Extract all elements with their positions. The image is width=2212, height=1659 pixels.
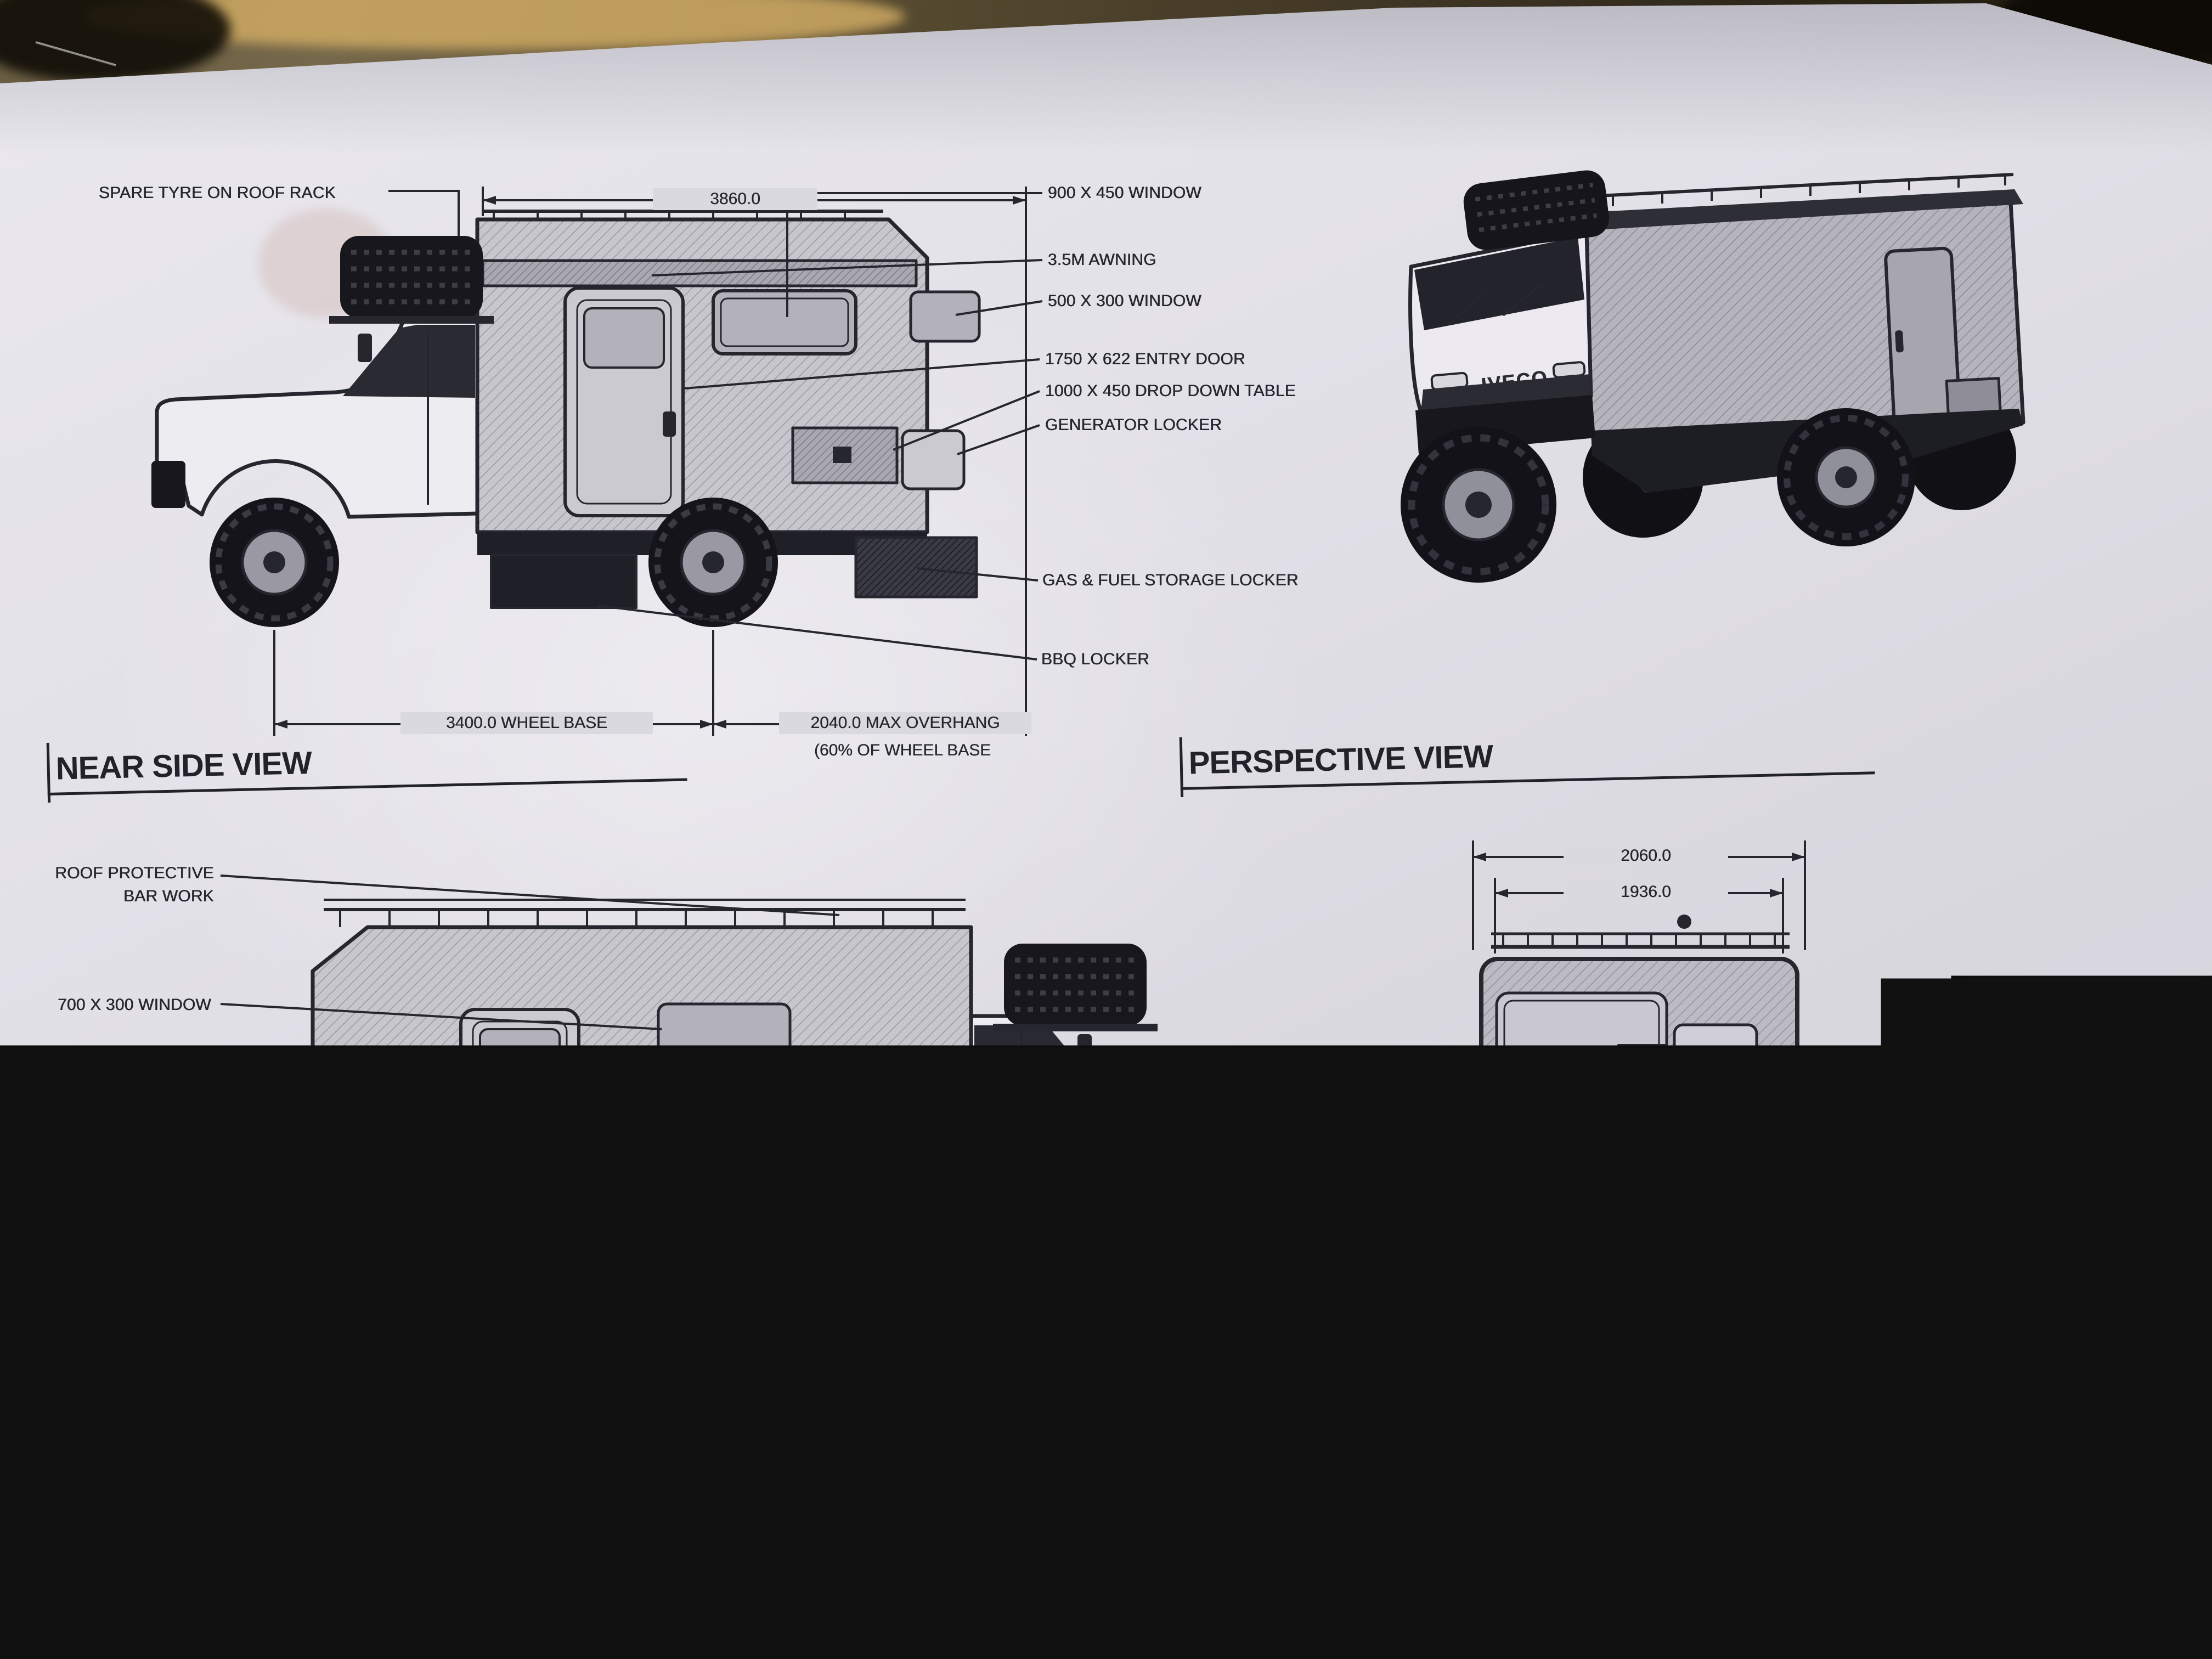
drawing-sheet: IVECO bbox=[0, 0, 2212, 1659]
perspective-view-drawing bbox=[1229, 126, 2194, 763]
issue-row-details: CONCEPT D bbox=[1242, 1628, 1326, 1645]
label-window-500: 500 X 300 WINDOW bbox=[1048, 290, 1201, 312]
issue-row-details: CONCEPT C bbox=[1242, 1646, 1325, 1659]
divider-4 bbox=[1722, 1582, 1725, 1659]
company-name-2: WARRIORS bbox=[207, 1616, 379, 1655]
label-window-700-upper: 700 X 300 WINDOW bbox=[22, 994, 211, 1015]
handwriting-tyres-heading: TYRES :- bbox=[1479, 1411, 1648, 1477]
projection-cone-icon bbox=[1835, 1595, 1918, 1659]
front-wheel bbox=[210, 498, 339, 627]
general-notes-heading: GENERAL NOT bbox=[2132, 1341, 2212, 1360]
issue-row-id: D bbox=[1182, 1627, 1192, 1644]
handwriting-psi-sand: 30 bbox=[1942, 1513, 1990, 1551]
company-name-1: ALL TERRAIN bbox=[189, 1581, 394, 1620]
units-divider bbox=[1525, 1620, 1722, 1623]
general-notes-line6: TAKE PRECED bbox=[2132, 1559, 2212, 1578]
rear-wheel bbox=[648, 498, 778, 627]
label-rear-storage: STORAGE LOCKER bbox=[1850, 1135, 2004, 1156]
sheet-row-divider-1 bbox=[1920, 1617, 2211, 1622]
project-code: PD.01 bbox=[533, 1594, 585, 1616]
drawing-number: VE-FM-501-9002 bbox=[529, 1620, 723, 1651]
dim-overall-length: 3860.0 bbox=[653, 188, 817, 210]
table-dark-corner-left bbox=[0, 0, 230, 82]
dim-overhang-2: (60% OF WHEEL BASE bbox=[779, 740, 1026, 761]
issue-row-req: JCB bbox=[1451, 1611, 1477, 1628]
sheet-size-value: A3 bbox=[2070, 1596, 2090, 1613]
label-generator: GENERATOR LOCKER bbox=[1045, 414, 1222, 436]
issue-row-details: CONCEPT E bbox=[1242, 1609, 1325, 1627]
issue-col-header: ISSUE ID: bbox=[1173, 1589, 1239, 1607]
general-notes-line2: BEFORE CON bbox=[2132, 1441, 2212, 1459]
issue-row-id: C bbox=[1181, 1646, 1192, 1659]
general-notes-emphasis: IF IN DOU bbox=[2132, 1365, 2212, 1401]
sheet-row-divider-2 bbox=[1920, 1651, 2211, 1656]
dim-overhang-1: 2040.0 MAX OVERHANG bbox=[779, 712, 1031, 734]
divider-1 bbox=[515, 1570, 518, 1659]
issue-row-req: JCB bbox=[1450, 1648, 1477, 1659]
sheet-number-label: SHEET NUMBE bbox=[2128, 1596, 2212, 1615]
label-gas-fuel: GAS & FUEL STORAGE LOCKER bbox=[1042, 569, 1299, 591]
atw-spartan-logo bbox=[21, 1568, 181, 1659]
handwriting-dirt: DIRT bbox=[1701, 1474, 1787, 1516]
general-notes-line4: DRAWINGS. bbox=[2132, 1500, 2212, 1519]
label-entry-door: 1750 X 622 ENTRY DOOR bbox=[1045, 348, 1245, 370]
copyright-1: COPYRIGHT © 2017 'ALL TERRAIN bbox=[1538, 1628, 1753, 1646]
drawing-title: IVECO DAILY 2 SLEEPER-TYPE bbox=[529, 1652, 749, 1659]
drawn-by-value: JCB bbox=[2064, 1630, 2093, 1648]
label-storage-lower: STORAGE LOCKER bbox=[22, 1306, 204, 1327]
company-tagline-1: MANUFACTURERS & DESIGNERS bbox=[182, 1657, 394, 1659]
dim-rear-inner: 1936.0 bbox=[1564, 881, 1728, 903]
label-bbq: BBQ LOCKER bbox=[1041, 648, 1149, 670]
handwriting-psi-dirt: 35 bbox=[1941, 1460, 1987, 1501]
near-side-view-drawing bbox=[44, 154, 1426, 817]
issue-row-req: JCB bbox=[1451, 1629, 1477, 1646]
general-notes-line5: NOMINATED D bbox=[2132, 1538, 2212, 1557]
req-col-header: REQ / REV bbox=[1431, 1592, 1504, 1610]
revised-by-label: REVISED BY bbox=[2128, 1630, 2212, 1649]
drawn-by-label: DRAWN BY: bbox=[1933, 1629, 2019, 1647]
perspective-front-wheel bbox=[1401, 427, 1556, 583]
off-front-wheel bbox=[1156, 1197, 1285, 1327]
details-col-header: REVISION DETAILS bbox=[1242, 1590, 1373, 1609]
dim-wheelbase: 3400.0 WHEEL BASE bbox=[400, 712, 653, 734]
divider-6 bbox=[2114, 1585, 2117, 1659]
registration-target-icon bbox=[1735, 1592, 1835, 1659]
right-end-view-drawing bbox=[1426, 812, 2205, 1415]
label-max-trax: MAX TRAX bbox=[1850, 1076, 1934, 1098]
frame-left-border bbox=[10, 1565, 13, 1659]
divider-5 bbox=[1919, 1583, 1922, 1659]
label-fuel-tank-2: WATER TANK bbox=[11, 1411, 168, 1432]
divider-2 bbox=[1162, 1576, 1165, 1659]
title-block: ALL TERRAIN WARRIORS MANUFACTURERS & DES… bbox=[7, 1561, 2212, 1659]
general-notes-line1: CHECK ALL DI bbox=[2132, 1420, 2212, 1438]
label-awning: 3.5M AWNING bbox=[1048, 249, 1156, 270]
general-notes-line3: DO NOT SCAL bbox=[2132, 1479, 2212, 1498]
label-drop-table: 1000 X 450 DROP DOWN TABLE bbox=[1045, 380, 1296, 402]
label-fuel-tank-1: 140L FUEL TANK & ?L bbox=[11, 1387, 168, 1408]
label-storage-upper: STORAGE LOCKER bbox=[22, 1139, 204, 1160]
label-window-700-lower: 700 X 300 WINDOW bbox=[22, 1067, 211, 1088]
label-spare-tyre: SPARE TYRE ON ROOF RACK bbox=[99, 182, 313, 204]
handwriting-sand: SAND bbox=[1695, 1517, 1794, 1564]
sheet-size-label: SHEET SIZE: bbox=[1933, 1595, 2027, 1613]
label-window-900: 900 X 450 WINDOW bbox=[1048, 182, 1201, 204]
dim-rear-outer: 2060.0 bbox=[1564, 845, 1728, 867]
label-external-shower: EXTERNAL SHOWER bbox=[22, 1194, 200, 1215]
photo-of-technical-drawing: IVECO bbox=[0, 0, 2212, 1659]
label-roof-bar-2: BAR WORK bbox=[22, 885, 214, 907]
issue-row-id: E bbox=[1182, 1609, 1192, 1626]
off-side-view-drawing bbox=[77, 845, 1459, 1531]
perspective-rear-wheel bbox=[1777, 408, 1915, 546]
label-roof-bar-1: ROOF PROTECTIVE bbox=[22, 862, 214, 884]
